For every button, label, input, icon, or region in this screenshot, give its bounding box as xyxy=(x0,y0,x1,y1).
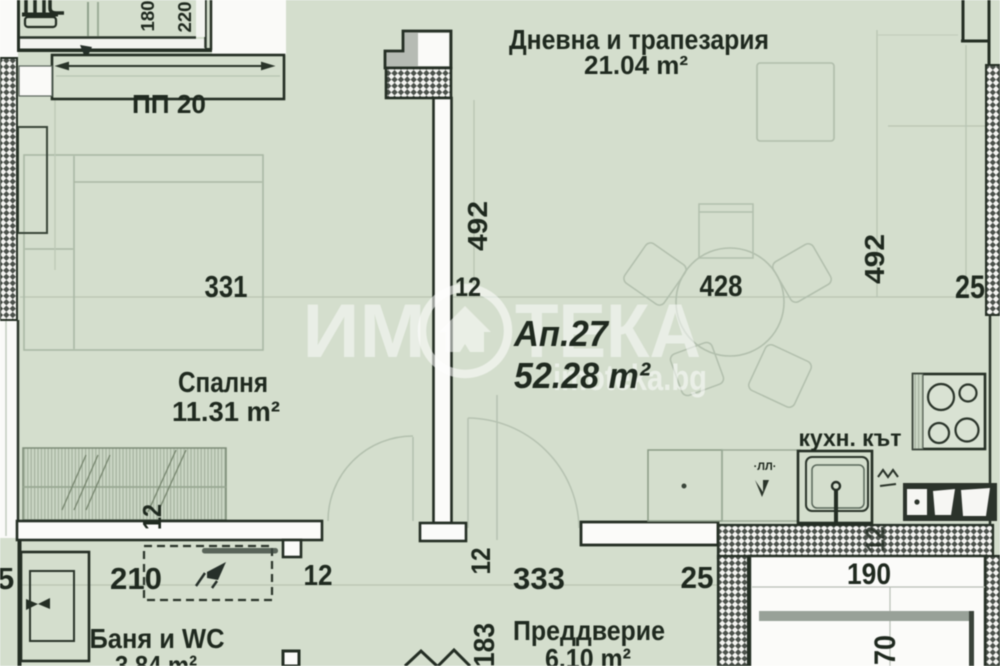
svg-text:492: 492 xyxy=(462,201,493,251)
svg-text:12: 12 xyxy=(860,526,890,552)
svg-text:ИМ: ИМ xyxy=(303,289,426,374)
svg-text:Ап.27: Ап.27 xyxy=(513,313,610,354)
svg-text:180: 180 xyxy=(138,1,158,32)
svg-text:ПП 20: ПП 20 xyxy=(132,89,206,119)
svg-text:333: 333 xyxy=(513,561,565,596)
svg-text:21.04 m²: 21.04 m² xyxy=(584,50,688,80)
svg-text:5: 5 xyxy=(0,561,14,596)
svg-text:492: 492 xyxy=(859,234,890,284)
svg-text:3.84 m²: 3.84 m² xyxy=(115,650,197,666)
svg-text:52.28 m²: 52.28 m² xyxy=(514,355,651,396)
svg-text:25: 25 xyxy=(955,269,985,305)
svg-text:70: 70 xyxy=(869,635,902,665)
svg-text:Преддверие: Преддверие xyxy=(513,615,665,646)
svg-text:6.10 m²: 6.10 m² xyxy=(545,643,631,666)
svg-text:11.31 m²: 11.31 m² xyxy=(172,396,280,427)
svg-text:·ЛЛ·: ·ЛЛ· xyxy=(754,461,777,473)
svg-text:Спалня: Спалня xyxy=(178,367,268,399)
svg-text:25: 25 xyxy=(681,560,714,595)
svg-text:12: 12 xyxy=(137,504,167,530)
svg-text:190: 190 xyxy=(847,558,891,591)
svg-text:183: 183 xyxy=(469,623,501,666)
svg-text:428: 428 xyxy=(700,270,743,303)
svg-text:кухн. кът: кухн. кът xyxy=(799,425,902,451)
svg-text:12: 12 xyxy=(466,548,496,575)
svg-text:331: 331 xyxy=(205,269,248,304)
svg-text:220: 220 xyxy=(175,2,195,33)
svg-text:210: 210 xyxy=(110,561,162,596)
svg-text:12: 12 xyxy=(455,272,481,302)
svg-text:12: 12 xyxy=(304,560,333,592)
